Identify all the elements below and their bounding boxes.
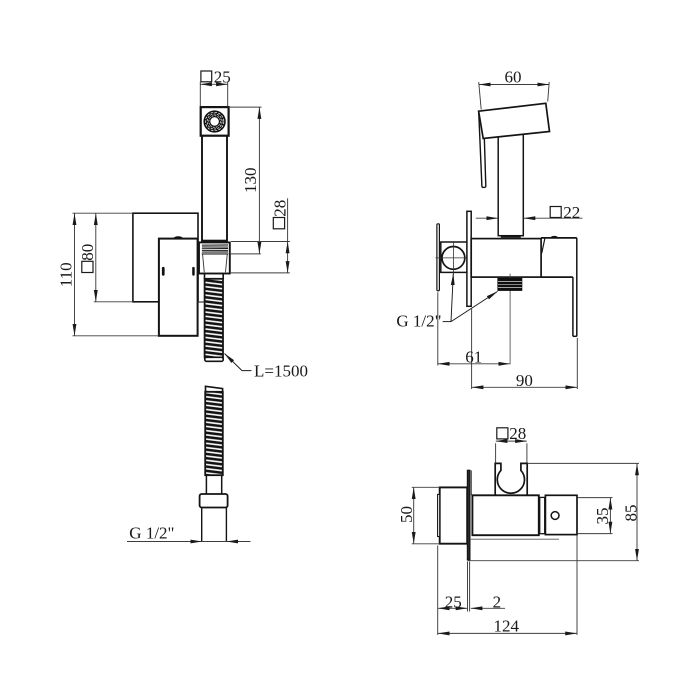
svg-text:60: 60 — [505, 67, 522, 86]
svg-text:2: 2 — [493, 592, 502, 611]
svg-text:85: 85 — [621, 505, 640, 522]
svg-text:G 1/2": G 1/2" — [396, 312, 441, 331]
svg-text:22: 22 — [563, 203, 580, 222]
svg-text:28: 28 — [271, 200, 290, 217]
svg-text:124: 124 — [494, 616, 520, 635]
svg-text:90: 90 — [516, 371, 533, 390]
svg-text:25: 25 — [445, 592, 462, 611]
svg-text:L=1500: L=1500 — [254, 361, 308, 380]
svg-text:110: 110 — [56, 262, 75, 287]
svg-text:61: 61 — [465, 348, 482, 367]
svg-text:35: 35 — [593, 508, 612, 525]
svg-text:80: 80 — [78, 244, 97, 261]
svg-text:G 1/2": G 1/2" — [129, 523, 174, 542]
svg-text:25: 25 — [214, 67, 231, 86]
svg-text:130: 130 — [241, 168, 260, 194]
svg-text:28: 28 — [509, 424, 526, 443]
svg-text:50: 50 — [397, 506, 416, 523]
